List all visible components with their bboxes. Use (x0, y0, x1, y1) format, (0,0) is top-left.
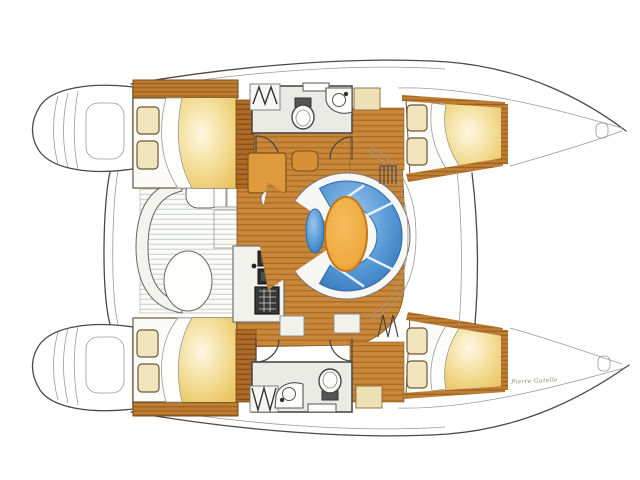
pillow (407, 361, 427, 388)
port-fore-bulkhead (501, 104, 508, 164)
pillow (137, 141, 158, 169)
starboard-fore-bulkhead (501, 330, 508, 390)
dinette (258, 173, 410, 299)
port-washbasin (333, 94, 346, 107)
starboard-washbasin (283, 388, 296, 401)
starboard-aft-headboard (133, 402, 238, 416)
pillow (407, 105, 427, 131)
port-basin-faucet (344, 92, 348, 96)
dinette-stool (306, 209, 324, 253)
saloon-table (325, 197, 367, 271)
pillow (137, 330, 158, 357)
port-aft-headboard (133, 80, 238, 98)
port-head-window (303, 83, 329, 91)
boat-plan-svg: Pierre Gutelle (0, 0, 640, 480)
nav-desk (248, 153, 286, 193)
galley-lower-cabinet-1 (280, 316, 304, 336)
galley-lower-cabinet-2 (334, 314, 360, 333)
starboard-head-locker (356, 386, 382, 408)
catamaran-floorplan-illustration: Pierre Gutelle (0, 0, 640, 480)
nav-seat (292, 151, 318, 171)
port-aft-cabin (133, 80, 254, 188)
pillow (407, 138, 427, 165)
starboard-basin-faucet (280, 398, 284, 402)
cockpit-seat-aft (164, 251, 212, 311)
pillow (407, 328, 427, 354)
pillow (138, 364, 159, 392)
galley-faucet (252, 264, 257, 269)
starboard-toilet (319, 369, 341, 393)
port-head-locker (354, 88, 380, 110)
pillow (137, 107, 159, 134)
starboard-aft-cabin (133, 318, 256, 416)
port-toilet (292, 105, 314, 129)
port-corridor-floor (350, 108, 404, 170)
starboard-head-window (308, 404, 336, 412)
cockpit (136, 180, 238, 313)
